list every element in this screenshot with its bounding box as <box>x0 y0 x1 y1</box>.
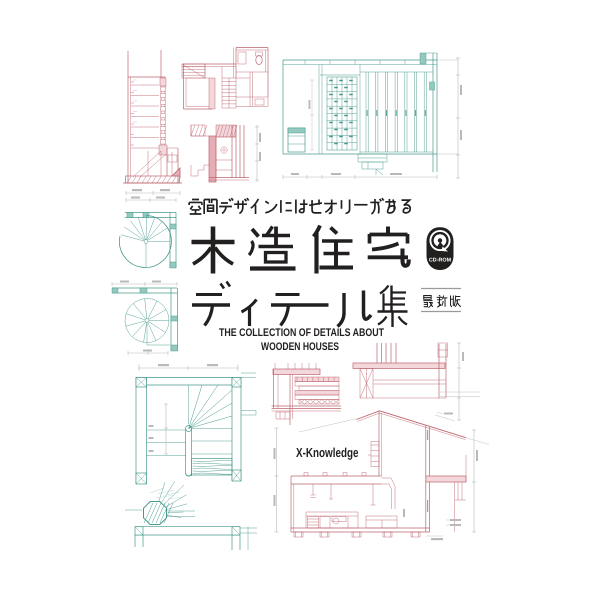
svg-text:X-Knowledge: X-Knowledge <box>296 445 359 460</box>
svg-text:THE COLLECTION OF DETAILS ABOU: THE COLLECTION OF DETAILS ABOUT <box>219 327 384 339</box>
svg-text:WOODEN HOUSES: WOODEN HOUSES <box>261 341 339 353</box>
svg-text:CD-ROM: CD-ROM <box>429 258 452 264</box>
